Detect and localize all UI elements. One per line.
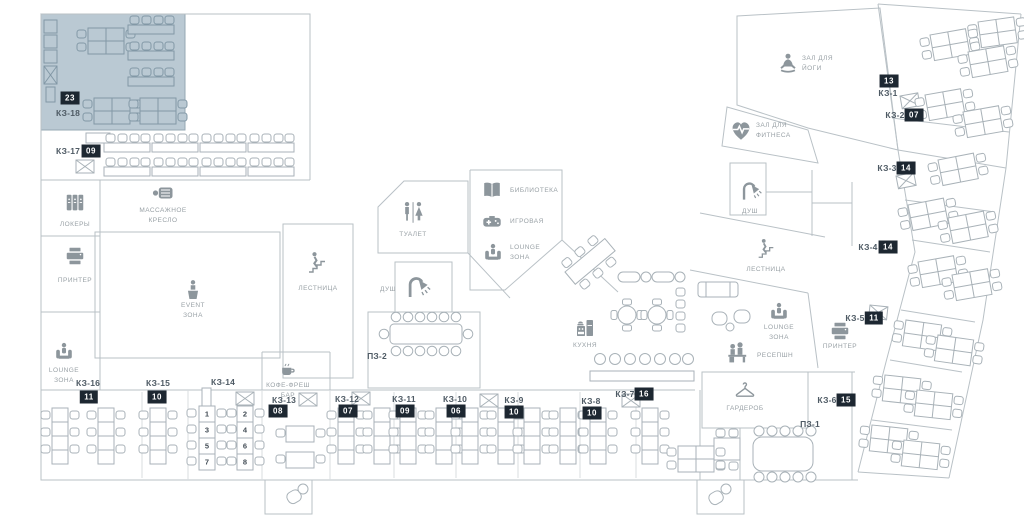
zone-label-massage-chair: МАССАЖНОЕ КРЕСЛО — [131, 206, 195, 226]
floor-plan: ЛОКЕРЫ ПРИНТЕР МАССАЖНОЕ КРЕСЛО EVENT ЗО… — [0, 0, 1024, 519]
lounge-icon — [53, 341, 75, 363]
gamepad-icon — [480, 211, 504, 233]
furniture-kitchen — [559, 231, 694, 381]
room-label-kz7: КЗ-7 — [615, 389, 634, 399]
zone-label-wardrobe: ГАРДЕРОБ — [726, 404, 763, 414]
room-label-kz4: КЗ-4 — [858, 242, 877, 252]
zone-label-printer-right: ПРИНТЕР — [823, 342, 857, 352]
room-badge-kz4: 14 — [879, 241, 898, 254]
room-label-kz18: КЗ-18 — [56, 108, 80, 118]
fitness-heart-icon — [728, 117, 754, 143]
kz14-desk-number: 1 — [205, 410, 209, 419]
zone-label-stairs-center: ЛЕСТНИЦА — [298, 284, 337, 294]
shower-icon — [737, 178, 763, 204]
zone-label-event-zone: EVENT ЗОНА — [174, 301, 212, 321]
room-label-kz6: КЗ-6 — [817, 395, 836, 405]
room-label-kz3: КЗ-3 — [877, 163, 896, 173]
room-badge-kz13: 08 — [269, 405, 288, 418]
room-badge-kz1: 13 — [880, 75, 899, 88]
zone-label-lounge-center: LOUNGE ЗОНА — [510, 243, 550, 263]
furniture-kz17 — [76, 133, 294, 176]
room-badge-kz9: 10 — [505, 406, 524, 419]
room-badge-kz2: 07 — [905, 109, 924, 122]
room-badge-kz12: 07 — [339, 405, 358, 418]
kitchen-icon — [572, 316, 596, 340]
room-badge-kz7: 16 — [635, 388, 654, 401]
zone-label-kitchen: КУХНЯ — [573, 341, 597, 351]
room-badge-kz17: 09 — [82, 145, 101, 158]
room-label-kz5: КЗ-5 — [845, 313, 864, 323]
room-label-kz15: КЗ-15 — [146, 378, 170, 388]
printer-icon — [829, 320, 851, 342]
yoga-icon — [776, 52, 800, 76]
room-badge-kz6: 15 — [837, 394, 856, 407]
zone-label-shower-center: ДУШ — [380, 285, 396, 295]
zone-label-library: БИБЛИОТЕКА — [510, 186, 558, 196]
room-label-kz16: КЗ-16 — [76, 378, 100, 388]
stairs-icon — [755, 238, 777, 260]
room-label-kz10: КЗ-10 — [443, 394, 467, 404]
room-label-kz9: КЗ-9 — [504, 395, 523, 405]
zone-label-fitness-hall: ЗАЛ ДЛЯ ФИТНЕСА — [756, 121, 800, 141]
room-label-pz1: ПЗ-1 — [800, 419, 820, 429]
kz14-desk-number: 7 — [205, 458, 209, 467]
room-badge-kz8: 10 — [583, 407, 602, 420]
zone-label-reception: РЕСЕПШН — [757, 351, 793, 361]
book-icon — [480, 180, 504, 202]
furniture-pz2 — [379, 312, 473, 356]
room-badge-kz3: 14 — [897, 162, 916, 175]
kz14-desk-number: 4 — [243, 426, 247, 435]
massage-chair-icon — [149, 181, 177, 205]
room-badge-kz18: 23 — [61, 92, 80, 105]
lounge-icon — [482, 242, 504, 264]
coffee-icon — [278, 359, 298, 379]
kz14-desk-number: 5 — [205, 442, 209, 451]
room-label-kz17: КЗ-17 — [56, 146, 80, 156]
printer-icon — [64, 245, 86, 267]
room-label-pz2: ПЗ-2 — [367, 351, 387, 361]
room-badge-kz10: 06 — [447, 405, 466, 418]
room-label-kz2: КЗ-2 — [885, 110, 904, 120]
toilet-icon — [400, 200, 426, 226]
zone-label-printer-left: ПРИНТЕР — [58, 276, 92, 286]
room-badge-kz15: 10 — [148, 391, 167, 404]
reception-icon — [724, 339, 750, 365]
shower-icon — [402, 272, 432, 302]
kz14-desk-number: 8 — [243, 458, 247, 467]
room-label-kz12: КЗ-12 — [335, 394, 359, 404]
room-label-kz8: КЗ-8 — [581, 396, 600, 406]
lockers-icon — [64, 192, 86, 214]
zone-label-lockers: ЛОКЕРЫ — [60, 220, 90, 230]
room-label-kz13: КЗ-13 — [272, 395, 296, 405]
kz14-desk-number: 3 — [205, 426, 209, 435]
furniture-pz1 — [714, 426, 816, 482]
hanger-icon — [732, 381, 758, 403]
room-badge-kz11: 09 — [396, 405, 415, 418]
room-label-kz14: КЗ-14 — [211, 377, 235, 387]
room-label-kz1: КЗ-1 — [878, 88, 897, 98]
zone-label-stairs-right: ЛЕСТНИЦА — [746, 265, 785, 275]
room-badge-kz5: 11 — [865, 312, 883, 325]
kz14-desk-number: 6 — [243, 442, 247, 451]
furniture-lounge-right — [698, 282, 750, 331]
kz14-desk-number: 2 — [243, 410, 247, 419]
zone-label-lounge-right: LOUNGE ЗОНА — [757, 323, 801, 343]
zone-label-shower-right: ДУШ — [742, 207, 758, 217]
zone-label-game-room: ИГРОВАЯ — [510, 217, 544, 227]
room-label-kz11: КЗ-11 — [392, 394, 416, 404]
zone-label-toilet: ТУАЛЕТ — [399, 230, 426, 240]
furniture-band — [41, 388, 731, 506]
zone-label-yoga-hall: ЗАЛ ДЛЯ ЙОГИ — [802, 54, 848, 74]
event-zone-icon — [182, 278, 204, 302]
lounge-icon — [768, 301, 790, 323]
room-badge-kz16: 11 — [80, 391, 98, 404]
stairs-icon — [305, 251, 329, 275]
